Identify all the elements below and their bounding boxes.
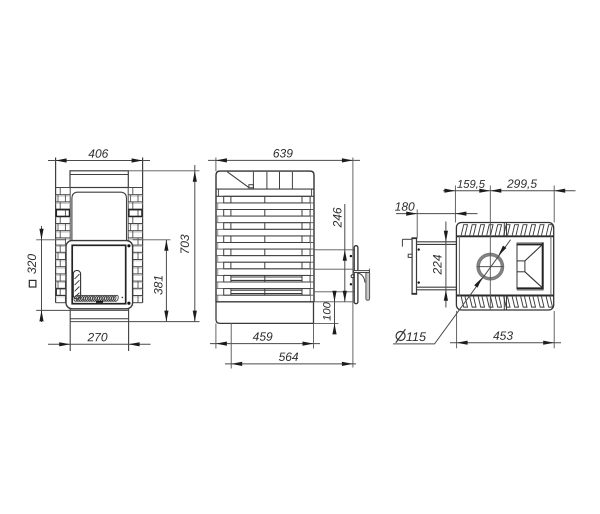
svg-text:453: 453 [493, 329, 513, 343]
svg-text:224: 224 [431, 254, 445, 275]
svg-text:381: 381 [152, 275, 166, 295]
svg-text:639: 639 [273, 146, 293, 160]
svg-text:320: 320 [25, 254, 39, 274]
svg-text:180: 180 [395, 200, 415, 214]
svg-text:299,5: 299,5 [506, 177, 537, 191]
svg-text:406: 406 [88, 147, 108, 161]
svg-text:246: 246 [331, 207, 345, 228]
svg-text:115: 115 [406, 330, 427, 344]
svg-text:270: 270 [86, 330, 107, 344]
svg-text:459: 459 [253, 330, 273, 344]
svg-text:703: 703 [178, 234, 192, 254]
svg-text:159,5: 159,5 [457, 179, 486, 191]
svg-text:100: 100 [322, 301, 334, 320]
svg-text:564: 564 [279, 350, 299, 364]
